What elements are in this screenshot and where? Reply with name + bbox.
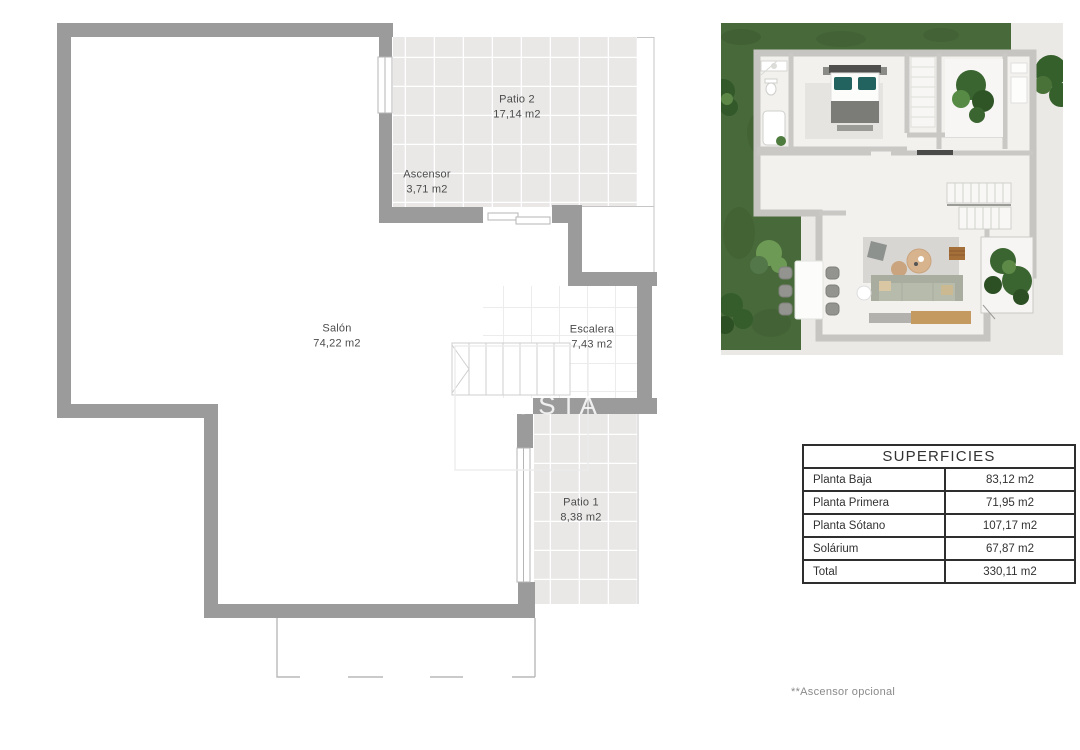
- row-label: Planta Primera: [804, 492, 946, 513]
- room-area: 7,43 m2: [570, 337, 614, 352]
- table-row: Planta Primera 71,95 m2: [804, 492, 1074, 515]
- room-area: 8,38 m2: [560, 510, 601, 525]
- pillow: [858, 77, 876, 90]
- side-table: [857, 286, 871, 300]
- document-page: OSTA Patio 2 17,14 m2 Ascensor 3,71 m2 S…: [0, 0, 1080, 750]
- room-name: Patio 2: [493, 92, 540, 107]
- closet: [911, 57, 935, 127]
- row-label: Planta Sótano: [804, 515, 946, 536]
- room-label-salon: Salón 74,22 m2: [313, 321, 360, 350]
- table-row: Planta Sótano 107,17 m2: [804, 515, 1074, 538]
- wood-deck: [911, 311, 971, 324]
- pillow: [834, 77, 852, 90]
- room-label-escalera: Escalera 7,43 m2: [570, 322, 614, 351]
- row-label: Solárium: [804, 538, 946, 559]
- room-name: Patio 1: [560, 495, 601, 510]
- table-row: Planta Baja 83,12 m2: [804, 469, 1074, 492]
- room-name: Salón: [313, 321, 360, 336]
- row-label: Planta Baja: [804, 469, 946, 490]
- table-title: SUPERFICIES: [804, 446, 1074, 469]
- dining-table: [795, 261, 823, 319]
- coffee-table: [891, 261, 907, 277]
- svg-text:OSTA: OSTA: [513, 390, 602, 420]
- table-row: Total 330,11 m2: [804, 561, 1074, 582]
- room-area: 74,22 m2: [313, 336, 360, 351]
- porch-outline: [277, 618, 535, 677]
- room-label-patio-2: Patio 2 17,14 m2: [493, 92, 540, 121]
- bench: [949, 247, 965, 260]
- patio-tree-top: [945, 59, 1003, 137]
- room-label-ascensor: Ascensor 3,71 m2: [403, 167, 450, 196]
- row-label: Total: [804, 561, 946, 582]
- room-label-patio-1: Patio 1 8,38 m2: [560, 495, 601, 524]
- row-value: 83,12 m2: [946, 469, 1074, 490]
- patio-trees-bottom: [981, 237, 1033, 319]
- bed-headboard: [829, 65, 881, 73]
- row-value: 71,95 m2: [946, 492, 1074, 513]
- room-area: 3,71 m2: [403, 182, 450, 197]
- staircase-icon: [452, 343, 570, 395]
- row-value: 107,17 m2: [946, 515, 1074, 536]
- dining-area: [779, 261, 839, 319]
- floor-plan-drawing: OSTA: [0, 0, 700, 750]
- render-image: [721, 23, 1063, 355]
- footnote: **Ascensor opcional: [791, 686, 895, 698]
- room-name: Escalera: [570, 322, 614, 337]
- row-value: 67,87 m2: [946, 538, 1074, 559]
- room-name: Ascensor: [403, 167, 450, 182]
- superficies-table: SUPERFICIES Planta Baja 83,12 m2 Planta …: [802, 444, 1076, 584]
- row-value: 330,11 m2: [946, 561, 1074, 582]
- appliances: [1011, 63, 1027, 103]
- table-row: Solárium 67,87 m2: [804, 538, 1074, 561]
- room-area: 17,14 m2: [493, 107, 540, 122]
- door-lintel: [917, 150, 953, 155]
